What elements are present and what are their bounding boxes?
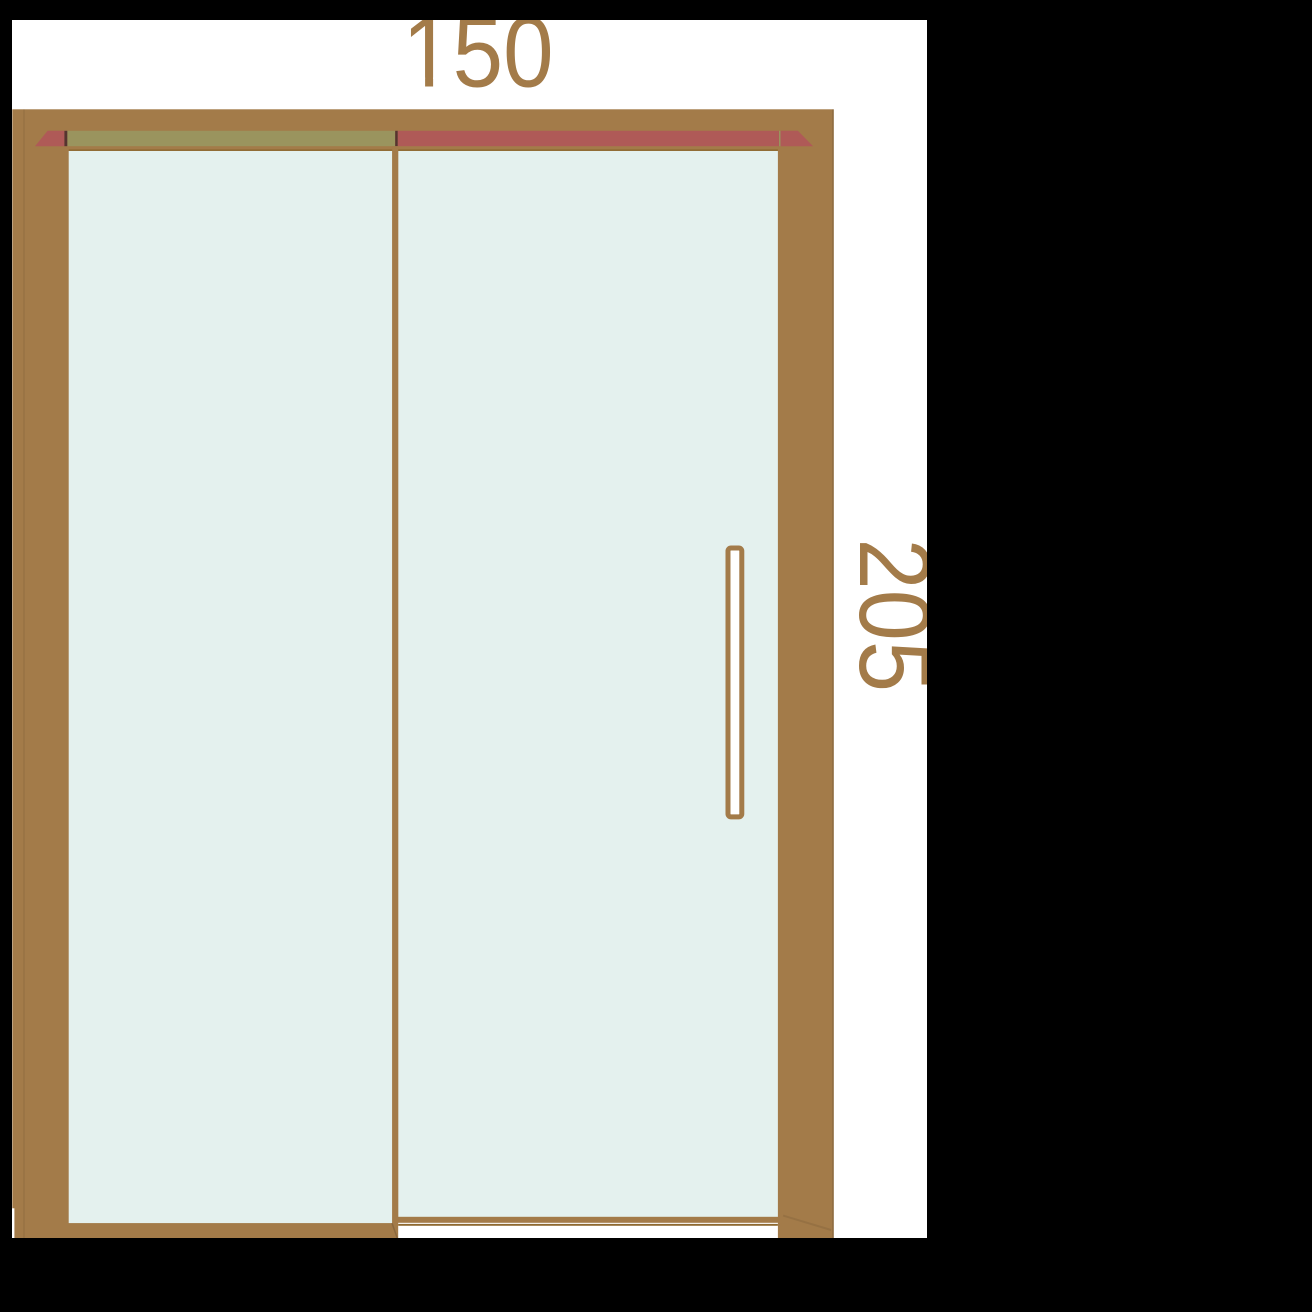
svg-text:205: 205: [838, 538, 927, 691]
svg-text:150: 150: [402, 20, 553, 108]
